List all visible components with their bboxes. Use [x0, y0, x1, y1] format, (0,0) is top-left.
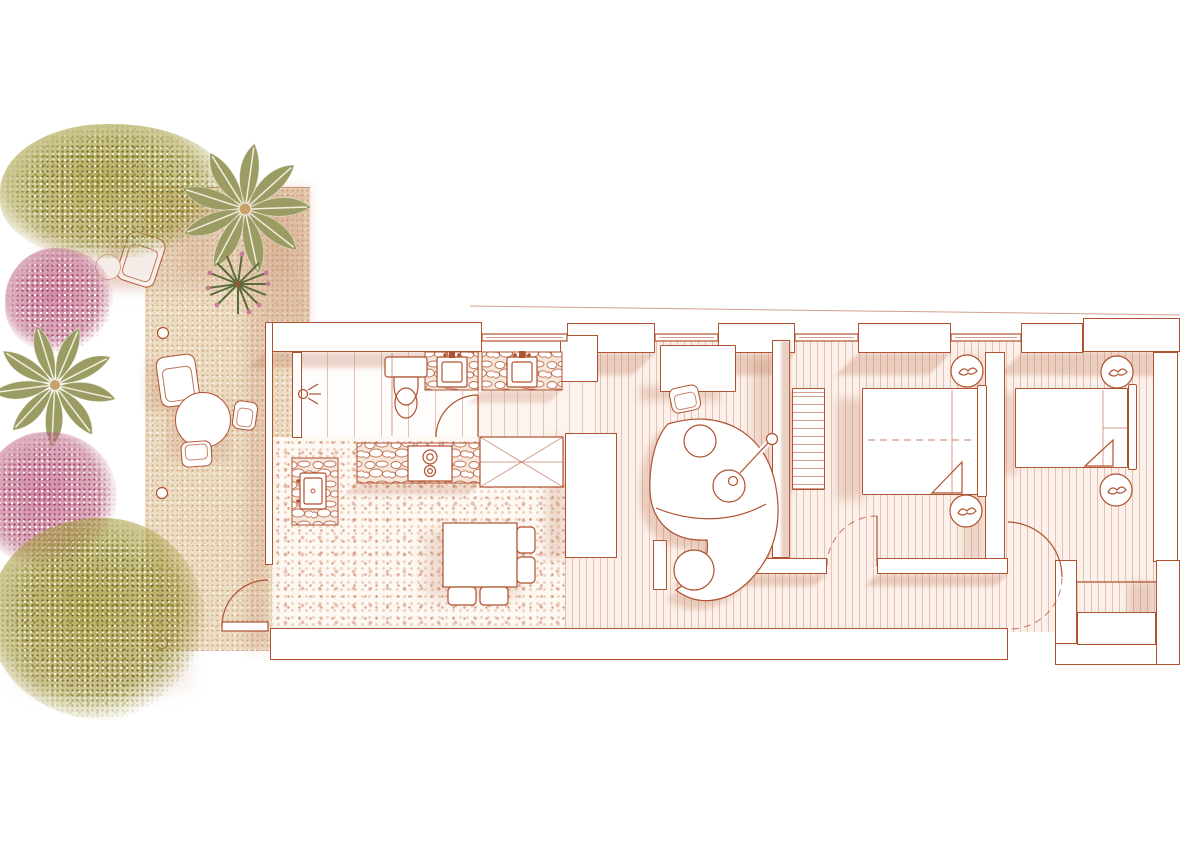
- niche-step: [1077, 612, 1156, 645]
- olive-tree-bottom: [0, 518, 205, 720]
- top-wall-pier: [1021, 323, 1083, 353]
- floor-plan-canvas: [0, 0, 1200, 849]
- hall-living-pier: [560, 335, 598, 382]
- kitchen-living-wall: [565, 433, 617, 558]
- window-1: [482, 334, 567, 341]
- bathroom-floor: [300, 352, 478, 437]
- bedroom1-bedroom2-wall: [985, 352, 1005, 574]
- niche-east-wall: [1156, 560, 1180, 665]
- top-wall-east-block: [1083, 318, 1180, 352]
- west-wall: [265, 322, 273, 565]
- roof-edge-line: [470, 306, 1180, 315]
- bed-1: [862, 388, 985, 495]
- wall-poche: [781, 341, 791, 559]
- bottom-wall-band: [270, 628, 1008, 660]
- terrace-chair-east: [231, 399, 259, 431]
- pink-bush: [5, 248, 113, 352]
- corridor-wall: [877, 558, 1008, 574]
- east-wall: [1153, 352, 1178, 562]
- wall-shelf-radiator: [792, 388, 825, 490]
- terrace-chair-south: [180, 440, 213, 468]
- corridor-wall-stub: [653, 540, 667, 590]
- bathroom-west-wall: [292, 352, 302, 438]
- bed-1-headboard: [977, 385, 987, 497]
- bed-2: [1015, 388, 1128, 468]
- corridor-wall: [685, 558, 827, 574]
- desk: [660, 345, 736, 392]
- bed-2-headboard: [1128, 384, 1137, 470]
- living-bedroom1-wall: [772, 340, 790, 558]
- top-wall-pier: [858, 323, 951, 353]
- terrace-sand-top-strip: [265, 187, 310, 323]
- olive-tree-top: [0, 124, 228, 259]
- top-wall-west: [265, 322, 482, 352]
